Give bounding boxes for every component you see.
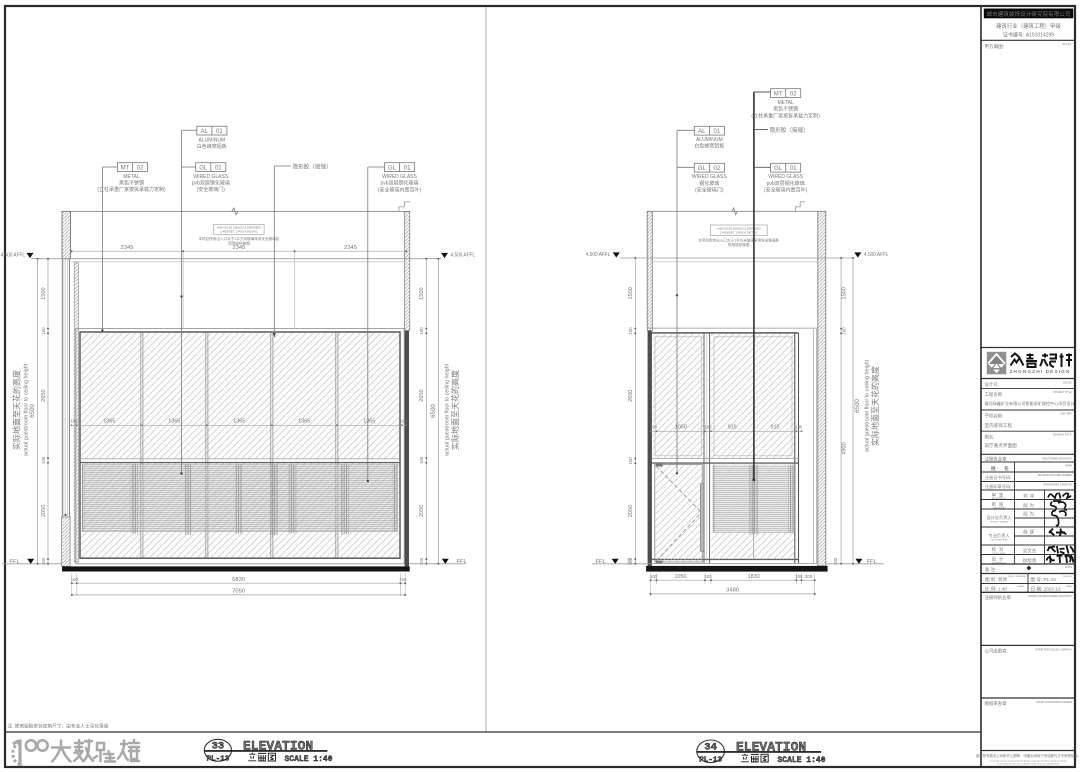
svg-text:PROJECT TITLE: PROJECT TITLE xyxy=(1053,391,1072,394)
svg-text:设计号:: 设计号: xyxy=(985,381,999,388)
svg-text:襄垣绿鑫矿业有限公司智能采矿操控中心项目设计: 襄垣绿鑫矿业有限公司智能采矿操控中心项目设计 xyxy=(985,400,1075,406)
svg-text:ALUMINUM: ALUMINUM xyxy=(696,137,723,143)
svg-text:6500: 6500 xyxy=(29,404,36,418)
svg-text:915: 915 xyxy=(728,425,737,431)
svg-text:02: 02 xyxy=(714,166,721,172)
svg-text:SCALE 1:40: SCALE 1:40 xyxy=(285,755,333,764)
svg-text:工程名称:: 工程名称: xyxy=(985,391,1004,398)
svg-text:本项目所有出入口大于1平方米玻璃采用安全玻璃胶: 本项目所有出入口大于1平方米玻璃采用安全玻璃胶 xyxy=(198,236,279,241)
svg-text:(立柱承重厂家按拆承载力定制): (立柱承重厂家按拆承载力定制) xyxy=(751,113,820,120)
svg-text:REGISTERED ARCHITECT: REGISTERED ARCHITECT xyxy=(1042,457,1072,460)
svg-text:证书编号: A151014299: 证书编号: A151014299 xyxy=(1003,32,1054,39)
svg-text:白色蜂窝铝板: 白色蜂窝铝板 xyxy=(197,143,227,150)
svg-text:100: 100 xyxy=(627,557,632,565)
svg-text:100: 100 xyxy=(842,327,847,335)
svg-text:注册印章号码:: 注册印章号码: xyxy=(985,483,1011,490)
svg-text:MT: MT xyxy=(121,166,130,172)
svg-text:DRAWING TITLE: DRAWING TITLE xyxy=(1053,434,1072,437)
svg-text:黑色不锈钢: 黑色不锈钢 xyxy=(773,106,798,113)
svg-text:2345: 2345 xyxy=(344,245,357,251)
svg-text:1365: 1365 xyxy=(103,419,115,425)
svg-text:设计总负责人: 设计总负责人 xyxy=(986,514,1012,521)
svg-text:(安全玻璃门): (安全玻璃门) xyxy=(197,186,226,193)
svg-text:GL: GL xyxy=(774,166,783,172)
svg-text:1500: 1500 xyxy=(41,287,47,299)
svg-text:4900: 4900 xyxy=(842,442,848,454)
svg-text:100: 100 xyxy=(399,577,407,582)
svg-text:姓: 姓 xyxy=(991,465,996,472)
svg-text:隐形胶（接缝）: 隐形胶（接缝） xyxy=(293,162,332,170)
svg-text:4.500 AFFL: 4.500 AFFL xyxy=(864,252,889,258)
svg-text:2650: 2650 xyxy=(628,390,634,402)
svg-text:阎为: 阎为 xyxy=(1023,511,1036,518)
svg-text:2345: 2345 xyxy=(121,245,134,251)
svg-text:STAMP FOR REGISTERED ARCHITECT: STAMP FOR REGISTERED ARCHITECT xyxy=(1028,595,1073,598)
svg-text:子项名称:: 子项名称: xyxy=(985,412,1004,419)
svg-text:版权所有属本公司和开让图等，申图出网地下申领属代方专审提前核: 版权所有属本公司和开让图等，申图出网地下申领属代方专审提前核。 xyxy=(976,753,1080,758)
svg-text:GL: GL xyxy=(698,166,707,172)
svg-text:FFL: FFL xyxy=(457,559,467,565)
svg-text:01: 01 xyxy=(790,166,797,172)
svg-text:DISCIPLINE HEAD: DISCIPLINE HEAD xyxy=(990,538,1008,541)
svg-text:DWG NO: DWG NO xyxy=(1063,576,1073,578)
svg-text:(立柱承重厂家按拆承载力定制): (立柱承重厂家按拆承载力定制) xyxy=(97,186,166,193)
svg-text:前厅重点界面图: 前厅重点界面图 xyxy=(985,442,1018,449)
svg-text:100: 100 xyxy=(795,574,803,579)
svg-text:100: 100 xyxy=(401,419,409,424)
svg-text:黑色不锈钢: 黑色不锈钢 xyxy=(119,180,144,187)
svg-text:A1-1/M: A1-1/M xyxy=(1062,42,1070,46)
svg-text:100: 100 xyxy=(705,425,713,430)
svg-text:1050: 1050 xyxy=(675,574,687,580)
svg-text:比 例: 1:40: 比 例: 1:40 xyxy=(985,586,1007,593)
svg-text:100: 100 xyxy=(41,557,46,565)
svg-text:FFL: FFL xyxy=(867,559,877,565)
svg-text:MT: MT xyxy=(774,92,783,98)
svg-text:1365: 1365 xyxy=(298,419,310,425)
svg-text:WIRED GLASS: WIRED GLASS xyxy=(768,174,803,180)
svg-text:100: 100 xyxy=(795,425,803,430)
svg-text:4.500 AFFL: 4.500 AFFL xyxy=(586,252,611,258)
svg-text:WIRED GLASS: WIRED GLASS xyxy=(193,174,228,180)
svg-text:100: 100 xyxy=(419,456,424,464)
svg-text:REGISTERED STAMP NO: REGISTERED STAMP NO xyxy=(1044,483,1073,486)
svg-text:01: 01 xyxy=(714,129,721,135)
svg-text:ALUMINUM: ALUMINUM xyxy=(198,138,225,144)
svg-text:1:400/SET 1:P03 4 DETAIL: 1:400/SET 1:P03 4 DETAIL xyxy=(220,230,258,234)
svg-text:pvb双层钢化玻璃: pvb双层钢化玻璃 xyxy=(380,180,418,187)
svg-text:Drawings must be stamped with: Drawings must be stamped with the design… xyxy=(990,759,1067,762)
svg-text:钢化玻璃: 钢化玻璃 xyxy=(699,180,719,187)
svg-text:1500: 1500 xyxy=(842,287,848,299)
svg-text:100: 100 xyxy=(41,456,46,464)
svg-text:实际地面至天花的高度: 实际地面至天花的高度 xyxy=(870,366,880,446)
svg-text:室内装饰工程: 室内装饰工程 xyxy=(985,422,1013,429)
svg-text:REGISTRATION REF NUMBER: REGISTRATION REF NUMBER xyxy=(1038,474,1072,477)
svg-text:actual guestroom floor to ceil: actual guestroom floor to ceiling height xyxy=(24,363,30,456)
svg-text:阎为: 阎为 xyxy=(1023,502,1036,509)
svg-text:4.500 AFFL: 4.500 AFFL xyxy=(1,252,26,258)
svg-text:100: 100 xyxy=(71,577,79,582)
svg-text:DATE: DATE xyxy=(1066,585,1072,588)
svg-text:6500: 6500 xyxy=(430,404,437,418)
svg-text:注册师执业章: 注册师执业章 xyxy=(985,594,1012,601)
svg-text:2050: 2050 xyxy=(419,505,425,517)
svg-text:本项目所有出入口大于1平方米玻璃采用安全玻璃胶: 本项目所有出入口大于1平方米玻璃采用安全玻璃胶 xyxy=(698,238,779,243)
svg-text:注: 蜂窝铝板安装定制尺寸，由专业人士深化落版: 注: 蜂窝铝板安装定制尺寸，由专业人士深化落版 xyxy=(7,722,108,729)
svg-text:2345: 2345 xyxy=(232,245,245,251)
svg-text:chief company's electronic sig: chief company's electronic signature bef… xyxy=(998,763,1060,766)
svg-text:2050: 2050 xyxy=(41,505,47,517)
svg-text:SUB ITEM: SUB ITEM xyxy=(1060,412,1071,415)
svg-text:1500: 1500 xyxy=(419,287,425,299)
svg-text:城市建筑装饰设计研究院有限公司: 城市建筑装饰设计研究院有限公司 xyxy=(987,10,1071,18)
svg-text:1365: 1365 xyxy=(233,419,245,425)
svg-text:2650: 2650 xyxy=(41,389,47,401)
svg-text:DWG. CATEGORY: DWG. CATEGORY xyxy=(1008,575,1027,578)
svg-text:1830: 1830 xyxy=(748,574,760,580)
svg-text:ELEVATION: ELEVATION xyxy=(243,738,313,753)
svg-text:100: 100 xyxy=(650,574,658,579)
svg-text:建筑行业（建筑工程）甲级: 建筑行业（建筑工程）甲级 xyxy=(996,22,1061,30)
svg-text:100: 100 xyxy=(628,457,633,465)
svg-text:pvb双层钢化玻璃: pvb双层钢化玻璃 xyxy=(767,180,805,187)
svg-text:915: 915 xyxy=(771,425,780,431)
svg-text:PROJECT LEADER: PROJECT LEADER xyxy=(990,520,1008,523)
svg-text:实际地面至天花的高度: 实际地面至天花的高度 xyxy=(12,370,22,450)
svg-text:隐形胶（接缝）: 隐形胶（接缝） xyxy=(770,126,809,134)
svg-text:ELEVATION: ELEVATION xyxy=(736,739,806,754)
svg-text:02: 02 xyxy=(790,92,797,98)
svg-text:FFL: FFL xyxy=(596,559,606,565)
svg-text:注册证书号码:: 注册证书号码: xyxy=(985,474,1011,481)
svg-text:2050: 2050 xyxy=(628,505,634,517)
svg-text:100: 100 xyxy=(628,327,633,335)
svg-text:(安全玻璃内置百叶): (安全玻璃内置百叶) xyxy=(378,187,422,194)
svg-text:100: 100 xyxy=(419,327,424,335)
svg-text:1365: 1365 xyxy=(168,419,180,425)
svg-text:02: 02 xyxy=(137,166,144,172)
svg-text:专业负责人: 专业负责人 xyxy=(989,532,1011,539)
svg-text:吴文杰: 吴文杰 xyxy=(1023,547,1037,554)
svg-text:01: 01 xyxy=(215,166,222,172)
svg-text:GL: GL xyxy=(388,166,397,172)
svg-text:注册执业章: 注册执业章 xyxy=(985,455,1008,462)
svg-text:刘冲: 刘冲 xyxy=(1023,493,1036,500)
svg-text:300: 300 xyxy=(805,574,813,579)
svg-text:METAL: METAL xyxy=(123,174,140,180)
svg-text:SCALE 1:40: SCALE 1:40 xyxy=(778,756,826,765)
svg-text:01: 01 xyxy=(216,129,223,135)
svg-text:WIRED GLASS: WIRED GLASS xyxy=(692,174,727,180)
svg-text:图 别: 装修: 图 别: 装修 xyxy=(985,576,1008,583)
svg-text:METAL: METAL xyxy=(777,100,794,106)
svg-text:SCALE: SCALE xyxy=(1017,585,1025,588)
svg-text:现场放样核图: 现场放样核图 xyxy=(228,240,250,245)
svg-text:白色蜂窝铝板: 白色蜂窝铝板 xyxy=(694,143,724,150)
svg-text:PL-13: PL-13 xyxy=(207,755,230,763)
svg-text:图名:: 图名: xyxy=(985,434,995,441)
svg-text:01: 01 xyxy=(404,166,411,172)
svg-text:(安全玻璃门): (安全玻璃门) xyxy=(695,186,724,193)
svg-text:校对: 校对 xyxy=(992,546,1007,553)
svg-text:实际地面至天花的高度: 实际地面至天花的高度 xyxy=(450,370,460,450)
svg-text:PL-13: PL-13 xyxy=(699,756,722,764)
svg-text:图纸审查章: 图纸审查章 xyxy=(985,700,1008,707)
svg-text:4.500 AFFL: 4.500 AFFL xyxy=(451,252,476,258)
svg-text:现场放样核图: 现场放样核图 xyxy=(728,242,750,247)
svg-text:徐旭清: 徐旭清 xyxy=(1023,557,1037,564)
svg-text:100: 100 xyxy=(650,425,658,430)
svg-text:AL: AL xyxy=(698,129,706,135)
svg-text:6500: 6500 xyxy=(854,399,861,413)
svg-text:名: 名 xyxy=(1004,465,1009,472)
svg-text:100: 100 xyxy=(71,419,79,424)
svg-text:甲方确图:: 甲方确图: xyxy=(985,43,1005,50)
svg-text:1365: 1365 xyxy=(363,419,375,425)
svg-text:100: 100 xyxy=(419,557,424,565)
svg-text:(安全玻璃内置百叶): (安全玻璃内置百叶) xyxy=(764,186,808,193)
svg-text:备 注:: 备 注: xyxy=(985,566,996,573)
svg-text:100: 100 xyxy=(705,574,713,579)
svg-text:FFL: FFL xyxy=(10,559,20,565)
svg-text:pvb双层钢化玻璃: pvb双层钢化玻璃 xyxy=(192,180,230,187)
svg-text:AL: AL xyxy=(201,129,209,135)
svg-text:2650: 2650 xyxy=(419,389,425,401)
svg-text:公司出图章: 公司出图章 xyxy=(985,647,1008,654)
svg-text:100: 100 xyxy=(41,327,46,335)
svg-text:1:400/SET 1:P03 4 DETAIL: 1:400/SET 1:P03 4 DETAIL xyxy=(720,231,758,235)
svg-text:杨捷: 杨捷 xyxy=(1023,529,1036,536)
svg-text:NOTE: NOTE xyxy=(1065,566,1072,569)
svg-text:7050: 7050 xyxy=(232,589,245,595)
svg-text:NAME: NAME xyxy=(1065,464,1072,467)
svg-text:ZHONGZHI DESIGN: ZHONGZHI DESIGN xyxy=(1010,369,1071,374)
svg-text:3480: 3480 xyxy=(726,588,739,594)
svg-text:JOB NO: JOB NO xyxy=(1063,381,1072,384)
svg-text:GL: GL xyxy=(199,166,208,172)
svg-text:WIRED GLASS: WIRED GLASS xyxy=(382,174,417,180)
svg-text:actual guestroom floor to ceil: actual guestroom floor to ceiling height xyxy=(864,359,870,452)
svg-text:STAMP FOR DRAWING REVIEW: STAMP FOR DRAWING REVIEW xyxy=(1036,701,1073,704)
svg-text:STAMP FOR ISSUING COMPANY: STAMP FOR ISSUING COMPANY xyxy=(1035,648,1072,651)
svg-text:actual guestroom floor to ceil: actual guestroom floor to ceiling height xyxy=(444,363,450,456)
svg-text:100: 100 xyxy=(833,557,838,565)
svg-text:1500: 1500 xyxy=(628,287,634,299)
svg-text:6830: 6830 xyxy=(232,577,245,583)
